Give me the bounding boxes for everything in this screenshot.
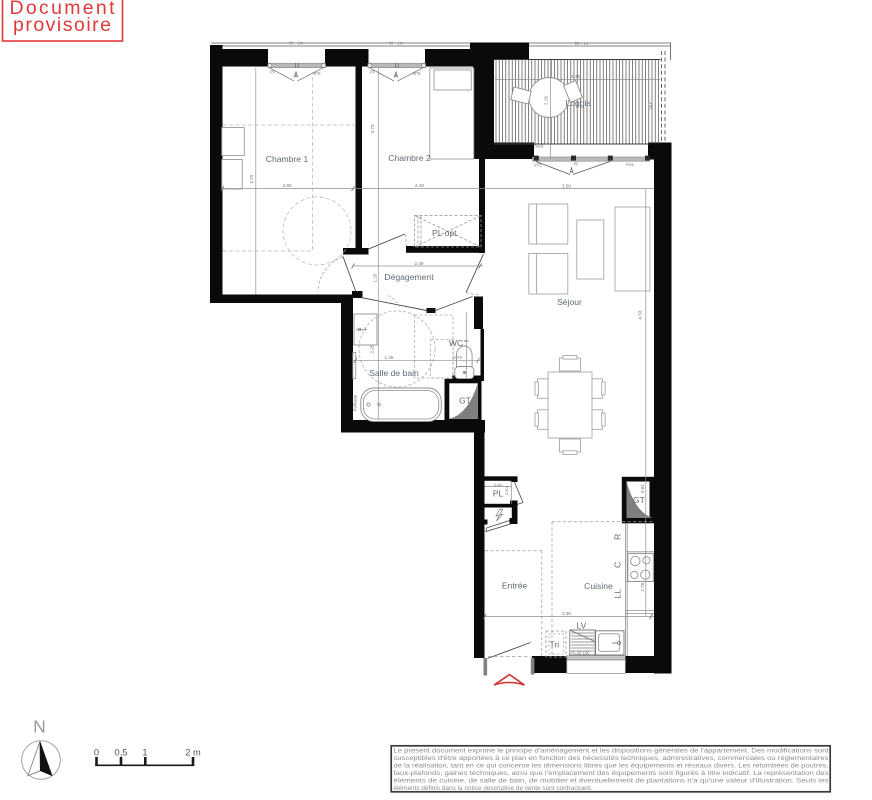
svg-text:1.45: 1.45 [385,355,394,360]
svg-text:0,5: 0,5 [115,748,128,758]
svg-text:2.26: 2.26 [543,96,548,105]
svg-text:VFE: VFE [413,71,421,76]
svg-text:de la réalisation, tant en ce: de la réalisation, tant en ce qui concer… [394,763,829,770]
svg-text:SEP: SEP [648,101,653,110]
svg-text:susceptibles d'être apportées: susceptibles d'être apportées à ce plan … [394,755,829,762]
svg-text:90 - 1m: 90 - 1m [575,41,590,46]
svg-text:2.80: 2.80 [283,183,292,188]
svg-text:1.20: 1.20 [372,273,377,282]
svg-text:90 - 1m: 90 - 1m [289,41,304,46]
svg-text:Entrée: Entrée [502,580,528,590]
svg-text:C: C [613,562,623,568]
svg-text:VFE: VFE [534,163,542,168]
svg-text:2 m: 2 m [185,748,201,758]
svg-text:Cuisine: Cuisine [584,581,613,591]
svg-text:0.73: 0.73 [453,355,462,360]
svg-text:PF: PF [370,70,376,75]
svg-text:Chambre 1: Chambre 1 [266,154,309,164]
svg-text:4.53: 4.53 [637,310,642,319]
svg-text:PL opt.: PL opt. [432,228,459,238]
svg-text:2.78: 2.78 [640,582,645,591]
svg-text:provisoire: provisoire [13,14,111,36]
svg-text:éléments de cuisine, de salle: éléments de cuisine, de salle de bain, d… [394,778,829,785]
svg-text:0: 0 [94,748,99,758]
svg-text:PL: PL [493,489,504,499]
svg-text:2.49: 2.49 [415,183,424,188]
svg-text:3.73: 3.73 [370,124,375,133]
svg-text:Tri: Tri [550,640,560,650]
svg-text:éléments définis dans la notic: éléments définis dans la notice descript… [394,785,594,792]
svg-text:faux-plafonds, gaines techniqu: faux-plafonds, gaines techniques, ainsi … [394,770,829,777]
svg-text:R: R [613,534,623,540]
svg-text:0.60: 0.60 [504,487,509,496]
svg-text:Loggia: Loggia [566,98,592,108]
svg-text:Dégagement: Dégagement [384,272,434,282]
svg-text:A: A [394,73,397,78]
svg-text:Salle de bain: Salle de bain [369,368,419,378]
svg-text:90 - 1m: 90 - 1m [389,41,404,46]
svg-text:GT: GT [633,495,646,505]
svg-text:PF: PF [574,161,580,166]
svg-text:2.26: 2.26 [369,344,374,353]
svg-text:3.50: 3.50 [562,183,571,188]
svg-text:1: 1 [142,748,147,758]
svg-text:WC: WC [449,338,463,348]
svg-text:Fixe: Fixe [626,162,635,167]
svg-text:Séjour: Séjour [557,297,582,307]
svg-text:3.45: 3.45 [571,74,580,79]
svg-text:Paillasse: Paillasse [353,394,358,411]
svg-text:0.40: 0.40 [494,482,503,487]
svg-text:GT: GT [459,396,472,406]
svg-text:3.30: 3.30 [562,611,571,616]
svg-text:Chambre 2: Chambre 2 [388,153,431,163]
svg-text:Le présent document exprime le: Le présent document exprime le principe … [394,748,829,755]
svg-text:PF: PF [270,70,276,75]
svg-text:2.49: 2.49 [415,261,424,266]
svg-text:VFE: VFE [313,71,321,76]
svg-text:A: A [294,73,297,78]
svg-text:0.61: 0.61 [640,484,645,493]
svg-text:N: N [33,717,46,737]
svg-text:LL: LL [613,589,623,599]
svg-text:LV: LV [577,621,587,631]
svg-text:4.70: 4.70 [249,174,254,183]
svg-text:7A A8 100: 7A A8 100 [571,651,591,656]
